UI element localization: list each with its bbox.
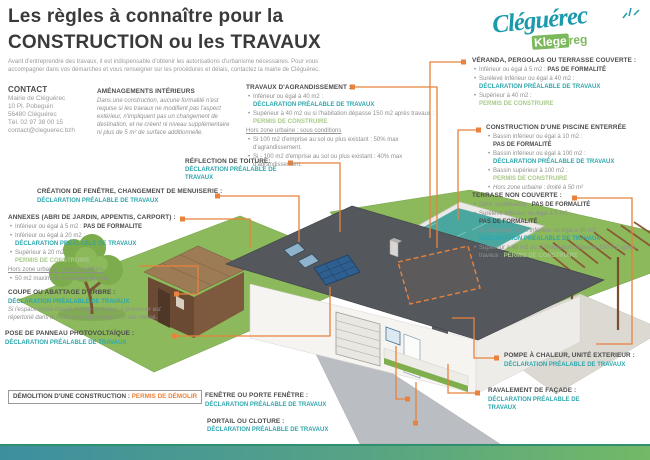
section-fenetre-porte: FENÊTRE OU PORTE FENÊTRE : DÉCLARATION P… [205,392,365,409]
intro-paragraph: Avant d'entreprendre des travaux, il est… [8,59,326,74]
rule-item: Supérieur à 40 m2 ou si l'habitation dép… [479,244,642,260]
town-logo: Cléguérec Klegereg [492,4,642,56]
rule-tag: PAS DE FORMALITÉ [547,67,606,73]
rule-tag: PERMIS DE CONSTRUIRE [253,119,327,125]
rule-text: Bassin inférieur ou égal à 100 m2 : [493,151,586,157]
section-heading: CONSTRUCTION D'UNE PISCINE ENTERRÉE [486,124,646,132]
section-heading: POSE DE PANNEAU PHOTOVOLTAÏQUE : [5,330,175,338]
rule-tag: PERMIS DE DÉMOLIR [132,393,197,400]
section-heading: RAVALEMENT DE FAÇADE : [488,387,598,395]
demolition-box: DÉMOLITION D'UNE CONSTRUCTION : PERMIS D… [8,390,202,404]
section-veranda: VÉRANDA, PERGOLAS OU TERRASSE COUVERTE :… [472,57,644,109]
rule-text: Supérieur à 20 m2 : [15,250,68,256]
section-heading: PORTAIL OU CLOTURE : [207,418,284,425]
rule-tag: DÉCLARATION PRÉALABLE DE TRAVAUX [15,240,188,248]
rule-tag: DÉCLARATION PRÉALABLE DE TRAVAUX [185,167,277,181]
rule-tag: PERMIS DE CONSTRUIRE [493,175,646,183]
rule-item: Surélevé de 0,5 m Inférieur ou égal à 40… [479,227,642,243]
logo-subtitle: Klegereg [532,32,588,50]
contact-email: contact@cleguerec.bzh [8,127,103,135]
rule-item: Si 100 m2 d'emprise au sol ou plus exist… [253,136,446,152]
rule-item: Supérieur à 40 m2 ou si l'habitation dép… [253,110,446,126]
section-amenagements-interieurs: AMÉNAGEMENTS INTÉRIEURS Dans une constru… [97,88,230,137]
rule-note: Hors zone urbaine : sous conditions [8,266,188,274]
section-heading: FENÊTRE OU PORTE FENÊTRE : [205,392,365,400]
footer-gradient-bar [0,444,650,460]
rule-note: Hors zone urbaine : limité à 50 m² [493,184,646,192]
page-title: Les règles à connaître pour la CONSTRUCT… [8,4,348,56]
title-line-1: Les règles à connaître pour la [8,4,348,30]
rule-tag: PERMIS DE CONSTRUIRE [504,253,578,259]
rule-tag: DÉCLARATION PRÉALABLE DE TRAVAUX [37,197,297,205]
contact-phone: Tél. 02 97 38 00 15 [8,119,103,127]
section-contact: CONTACT Mairie de Cléguérec 10 Pl. Pobeg… [8,86,103,135]
section-coupe-abattage: COUPE OU ABATTAGE D'ARBRE : DÉCLARATION … [8,289,180,322]
rule-text: Inférieur ou égal à 40 m2 : [253,94,323,100]
section-panneau-photovoltaique: POSE DE PANNEAU PHOTOVOLTAÏQUE : DÉCLARA… [5,330,175,347]
rule-item: Sans surélévation : PAS DE FORMALITÉ [479,201,642,209]
section-heading: AMÉNAGEMENTS INTÉRIEURS [97,88,230,96]
rule-item: Bassin inférieur ou égal à 100 m2 : DÉCL… [493,150,646,166]
rule-item: Surélevé Inférieur ou égal à 5 m2 : PAS … [479,210,642,226]
section-heading: RÉFLECTION DE TOITURE: [185,158,271,165]
rule-note: Hors zone urbaine : sous conditions [246,127,446,135]
rule-tag: DÉCLARATION PRÉALABLE DE TRAVAUX [488,396,598,412]
rule-text: Inférieur ou égal à 5 m2 : [15,224,82,230]
rule-item: Inférieur ou égal à 5 m2 : PAS DE FORMAL… [479,66,644,74]
section-heading: COUPE OU ABATTAGE D'ARBRE : [8,289,180,297]
rule-text: Inférieur ou égal à 20 m2 : [15,233,85,239]
section-piscine: CONSTRUCTION D'UNE PISCINE ENTERRÉE Bass… [486,124,646,193]
rule-item: 50 m2 maximum d'annexes (quota) [15,275,188,283]
section-terrasse-non-couverte: TERRASE NON COUVERTE : Sans surélévation… [472,192,642,261]
rule-text: Dans une construction, aucune formalité … [97,97,230,137]
rule-tag: DÉCLARATION PRÉALABLE DE TRAVAUX [479,83,644,91]
rule-text: Supérieur à 40 m2 : [479,93,532,99]
infographic-page: Les règles à connaître pour la CONSTRUCT… [0,0,650,460]
rule-tag: PAS DE FORMALITÉ [493,141,646,149]
rule-tag: DÉCLARATION PRÉALABLE DE TRAVAUX [504,361,650,369]
rule-tag: DÉCLARATION PRÉALABLE DE TRAVAUX [207,427,328,433]
section-heading: VÉRANDA, PERGOLAS OU TERRASSE COUVERTE : [472,57,644,65]
rule-tag: DÉCLARATION PRÉALABLE DE TRAVAUX [8,298,180,306]
rule-item: Supérieur à 40 m2 : PERMIS DE CONSTRUIRE [479,92,644,108]
rule-tag: DÉCLARATION PRÉALABLE DE TRAVAUX [253,101,446,109]
contact-heading: CONTACT [8,86,103,94]
section-heading: DÉMOLITION D'UNE CONSTRUCTION : [13,393,130,400]
rule-text: Sans surélévation : [479,202,530,208]
rule-item: Inférieur ou égal à 20 m2 : DÉCLARATION … [15,232,188,248]
section-pompe-chaleur: POMPE À CHALEUR, UNITÉ EXTERIEUR : DÉCLA… [504,352,650,369]
rule-item: Bassin inférieur ou égal à 10 m2 : PAS D… [493,133,646,149]
rule-tag: DÉCLARATION PRÉALABLE DE TRAVAUX [479,235,642,243]
rule-text: Surélevé Inférieur ou égal à 5 m2 : [479,211,571,217]
rule-text: Surélevé de 0,5 m Inférieur ou égal à 40… [479,228,599,234]
rule-text: Surélevé Inférieur ou égal à 40 m2 : [479,76,574,82]
rule-item: Inférieur ou égal à 5 m2 : PAS DE FORMAL… [15,223,188,231]
rule-note: Si l'espace boisé classé, l'arbre ou le … [8,306,180,322]
section-ravalement-facade: RAVALEMENT DE FAÇADE : DÉCLARATION PRÉAL… [488,387,598,412]
rule-text: Bassin inférieur ou égal à 10 m2 : [493,134,582,140]
rule-tag: DÉCLARATION PRÉALABLE DE TRAVAUX [493,158,646,166]
rule-text: Bassin supérieur à 100 m2 : [493,168,568,174]
rule-tag: DÉCLARATION PRÉALABLE DE TRAVAUX [205,401,365,409]
rule-item: Bassin supérieur à 100 m2 : PERMIS DE CO… [493,167,646,183]
section-creation-fenetre: CRÉATION DE FENÊTRE, CHANGEMENT DE MENUI… [37,188,297,205]
contact-street: 10 Pl. Pobeguin [8,103,103,111]
section-heading: CRÉATION DE FENÊTRE, CHANGEMENT DE MENUI… [37,188,297,196]
rule-text: Supérieur à 40 m2 ou si l'habitation dép… [253,111,434,117]
rule-tag: DÉCLARATION PRÉALABLE DE TRAVAUX [5,339,175,347]
rule-tag: PAS DE FORMALITÉ [479,218,642,226]
contact-city: 56480 Cléguérec [8,111,103,119]
rule-item: Inférieur ou égal à 40 m2 : DÉCLARATION … [253,93,446,109]
rule-item: Supérieur à 20 m2 : PERMIS DE CONSTRUIRE [15,249,188,265]
section-heading: ANNEXES (ABRI DE JARDIN, APPENTIS, CARPO… [8,214,188,222]
section-demolition: DÉMOLITION D'UNE CONSTRUCTION : PERMIS D… [8,390,202,404]
section-heading: POMPE À CHALEUR, UNITÉ EXTERIEUR : [504,352,650,360]
rule-text: Inférieur ou égal à 5 m2 : [479,67,546,73]
rule-tag: PERMIS DE CONSTRUIRE [15,257,188,265]
contact-name: Mairie de Cléguérec [8,95,103,103]
section-annexes: ANNEXES (ABRI DE JARDIN, APPENTIS, CARPO… [8,214,188,284]
rule-tag: PAS DE FORMALITE [83,224,142,230]
rule-tag: PERMIS DE CONSTRUIRE [479,100,644,108]
section-heading: TRAVAUX D'AGRANDISSEMENT : [246,84,446,92]
section-refection-toiture: RÉFLECTION DE TOITURE: DÉCLARATION PRÉAL… [185,158,297,182]
title-line-2: CONSTRUCTION ou les TRAVAUX [8,30,348,56]
rule-text: 50 m2 maximum d'annexes (quota) [15,276,109,282]
rule-text: Si 100 m2 d'emprise au sol ou plus exist… [253,137,399,151]
rule-tag: PAS DE FORMALITÉ [532,202,591,208]
section-portail-cloture: PORTAIL OU CLOTURE : DÉCLARATION PRÉALAB… [207,418,329,434]
section-heading: TERRASE NON COUVERTE : [472,192,642,200]
rule-item: Surélevé Inférieur ou égal à 40 m2 : DÉC… [479,75,644,91]
